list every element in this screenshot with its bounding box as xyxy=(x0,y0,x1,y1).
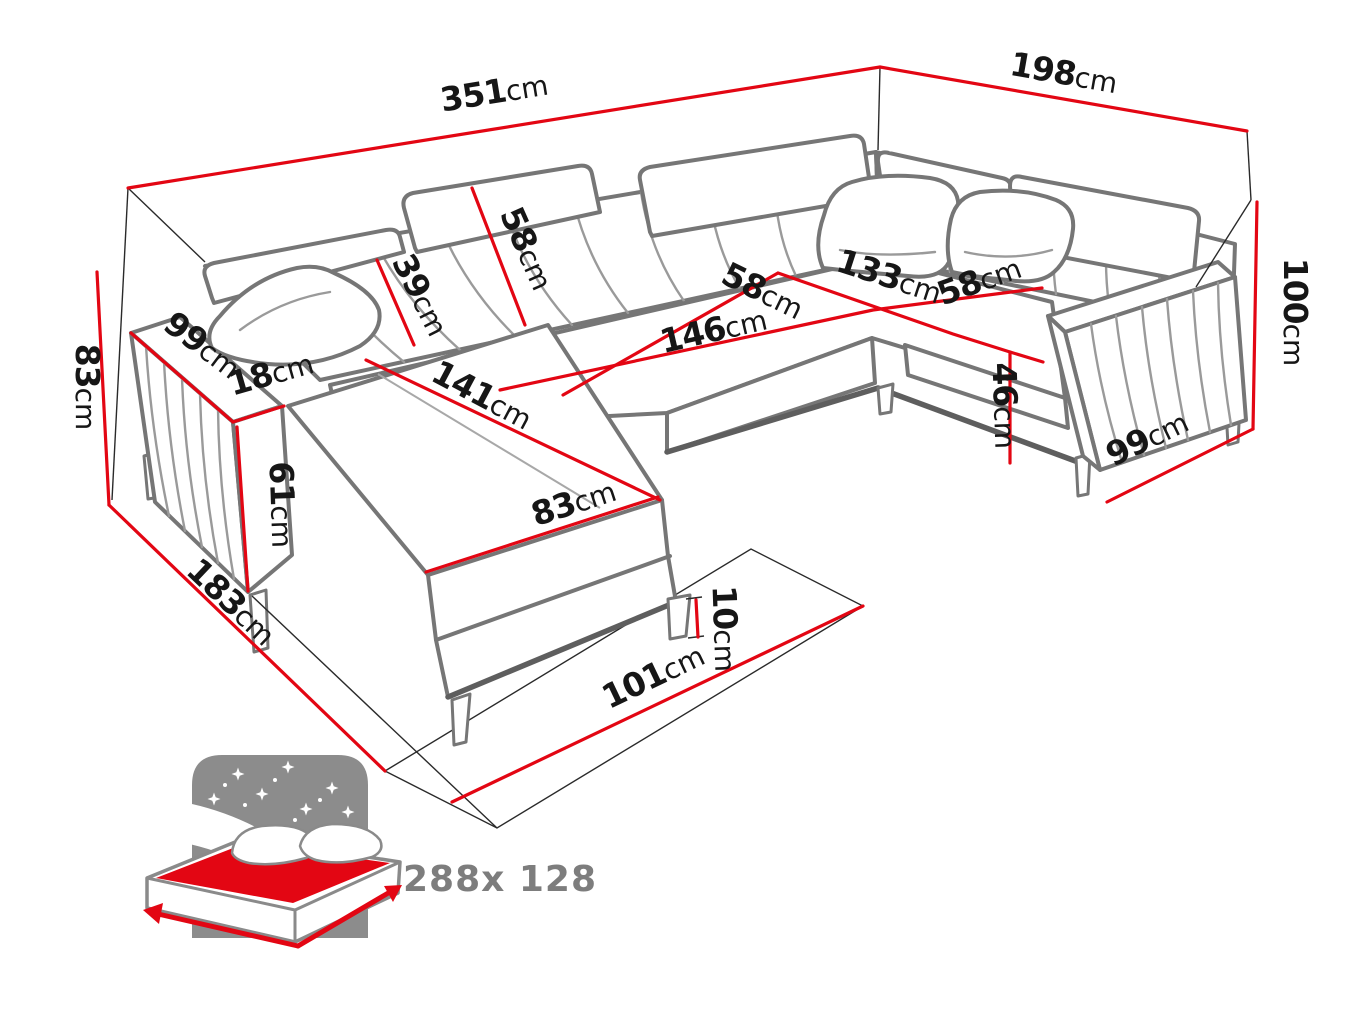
label-total-height: 100cm xyxy=(1276,258,1315,367)
diagram-canvas: 351cm 198cm 100cm 83cm 99cm 18cm 61cm 18… xyxy=(0,0,1356,1017)
chaise-front-right-leg xyxy=(668,595,690,639)
sleeping-area-size: 288x 128 xyxy=(403,859,597,900)
label-seat-height: 46cm xyxy=(984,362,1026,450)
corner-leg xyxy=(878,384,893,414)
label-front-width: 101cm xyxy=(596,635,711,717)
line-total-height xyxy=(1253,202,1257,429)
pillow-right-icon xyxy=(300,824,381,862)
chaise-front-left-leg xyxy=(452,694,470,745)
sleeping-function-icon xyxy=(112,755,402,946)
sofa-dimension-diagram: 351cm 198cm 100cm 83cm 99cm 18cm 61cm 18… xyxy=(0,0,1356,1017)
label-back-width: 351cm xyxy=(437,64,550,120)
label-arm-height: 61cm xyxy=(261,461,303,549)
line-leg-height xyxy=(696,600,698,637)
label-leg-height: 10cm xyxy=(704,585,746,673)
label-left-height: 83cm xyxy=(68,344,107,431)
